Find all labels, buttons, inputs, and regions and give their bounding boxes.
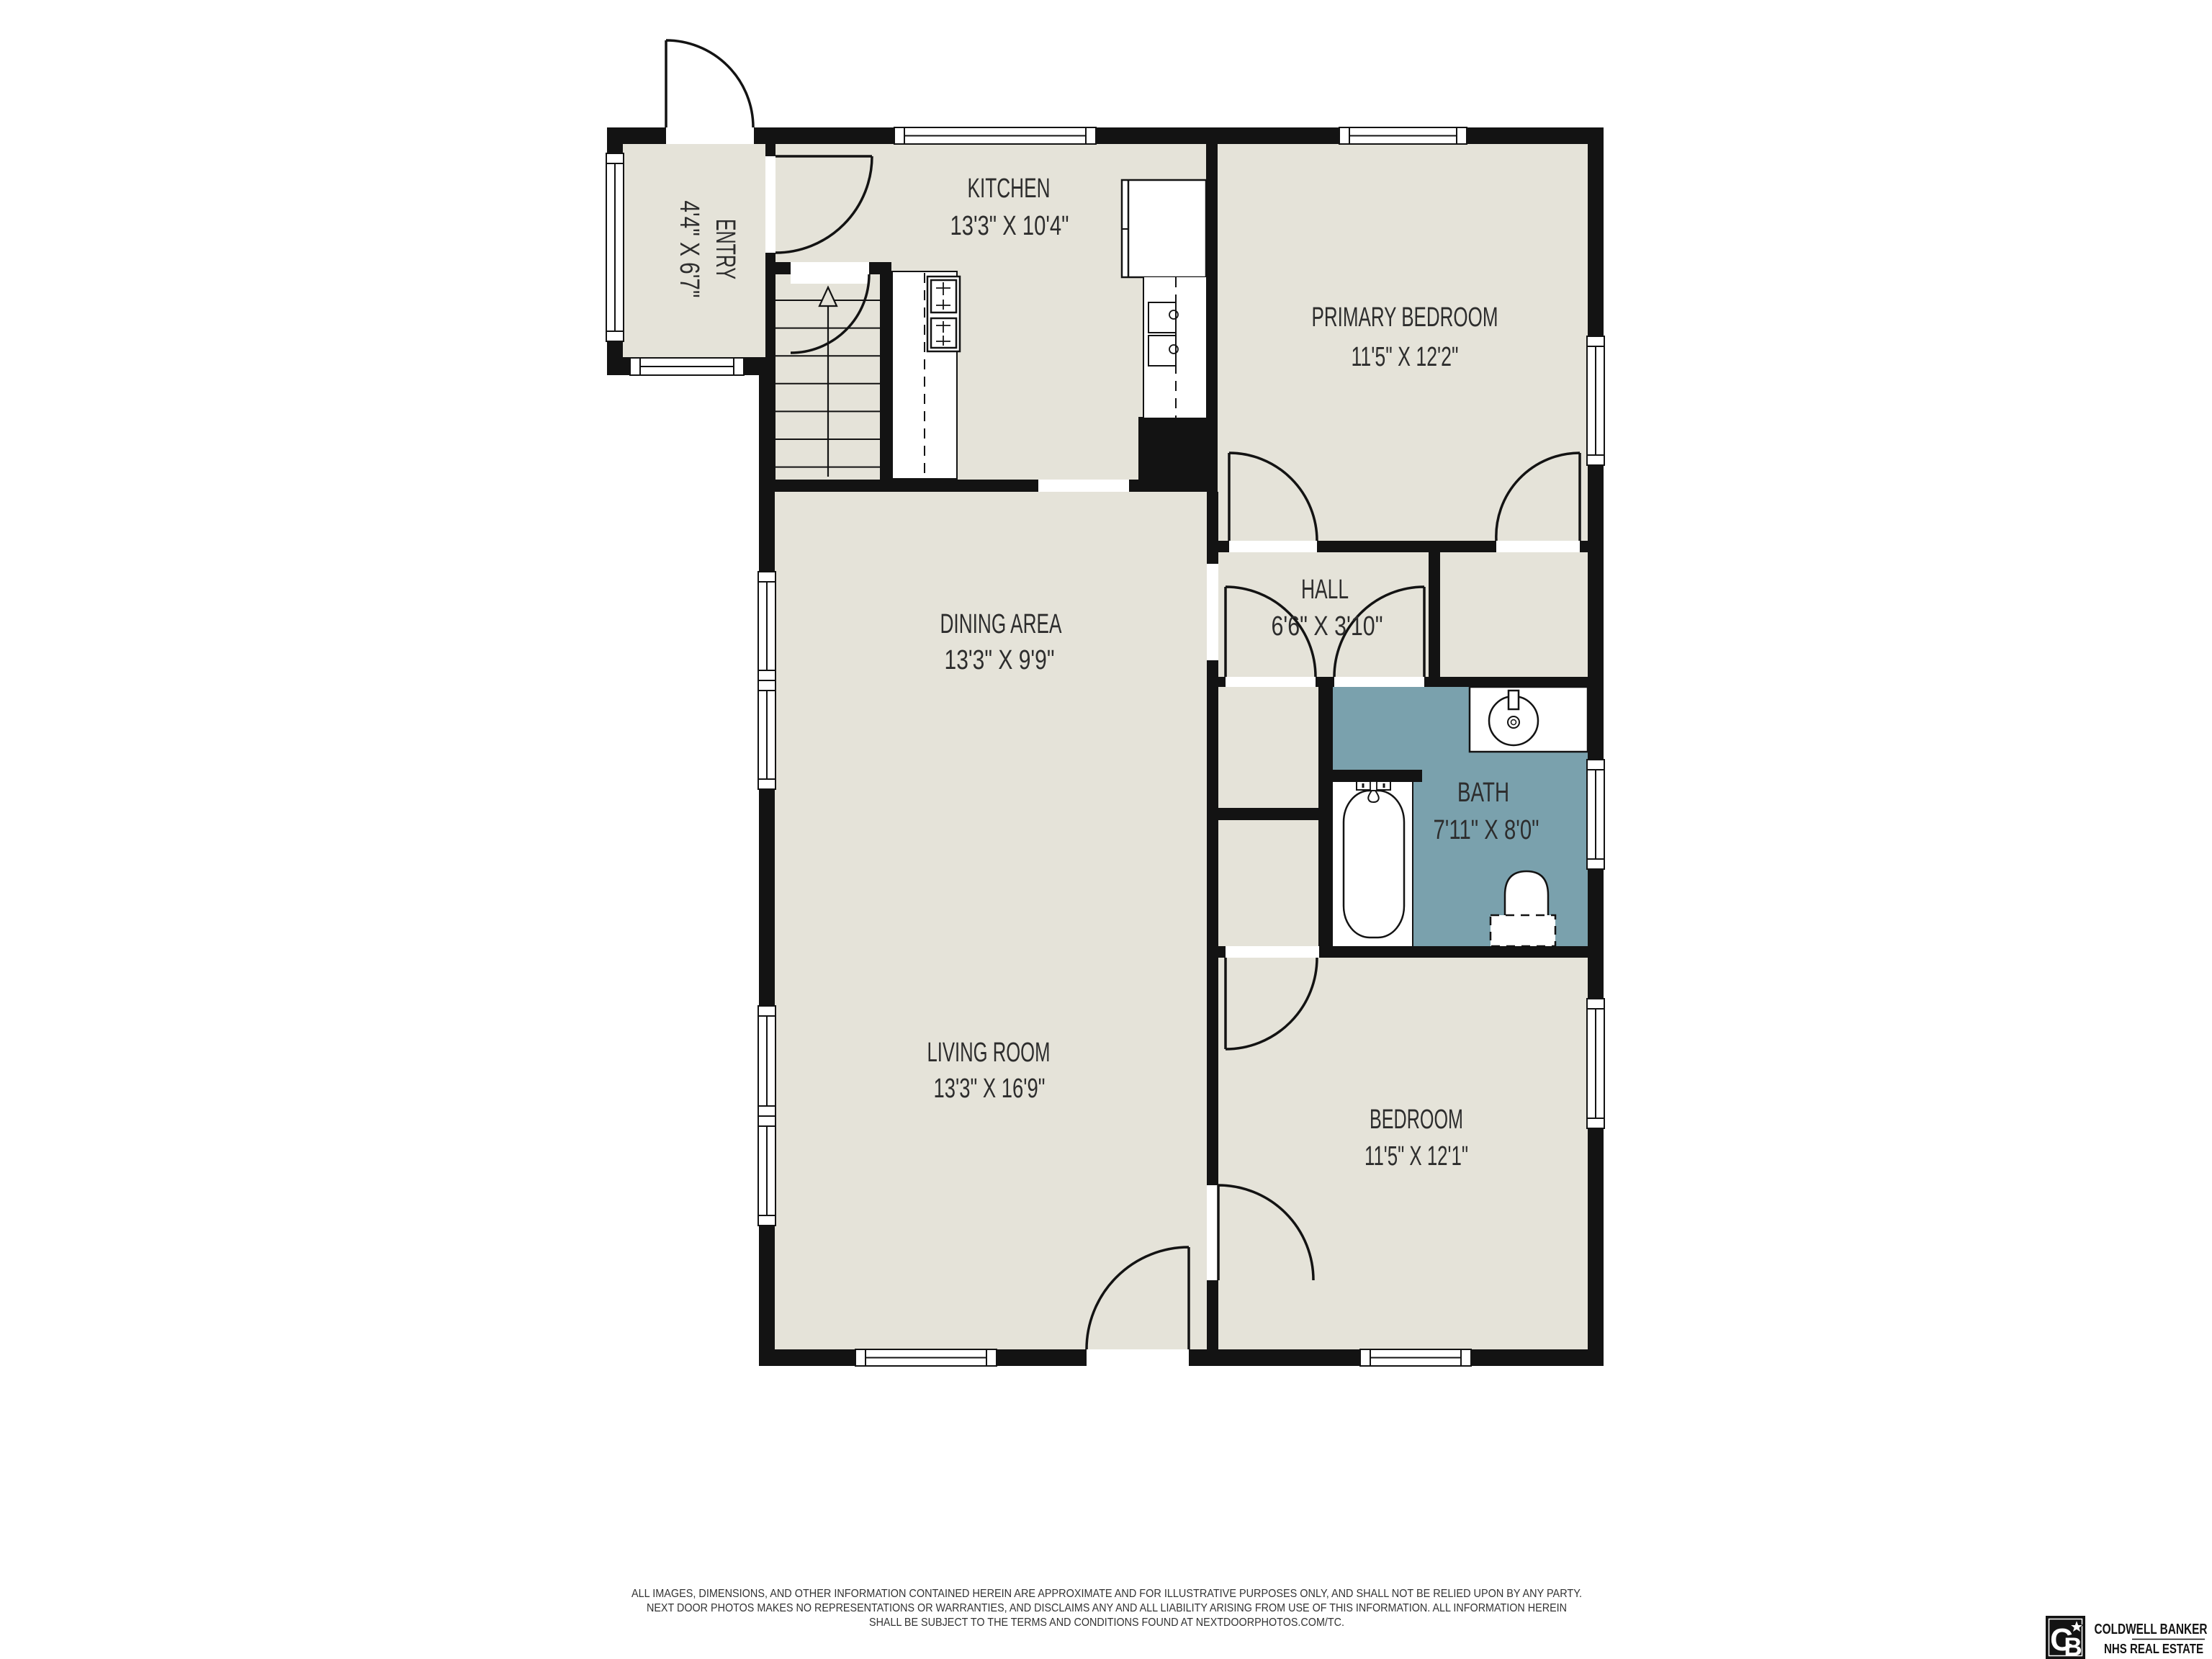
svg-text:NHS REAL ESTATE: NHS REAL ESTATE — [2104, 1642, 2203, 1656]
svg-text:13'3" X 9'9": 13'3" X 9'9" — [945, 645, 1055, 675]
svg-text:13'3" X 10'4": 13'3" X 10'4" — [950, 211, 1069, 241]
svg-text:NEXT DOOR PHOTOS MAKES NO REPR: NEXT DOOR PHOTOS MAKES NO REPRESENTATION… — [647, 1602, 1567, 1614]
svg-text:7'11" X 8'0": 7'11" X 8'0" — [1434, 815, 1539, 845]
svg-text:BEDROOM: BEDROOM — [1370, 1105, 1463, 1135]
svg-text:SHALL BE SUBJECT TO THE TERMS: SHALL BE SUBJECT TO THE TERMS AND CONDIT… — [869, 1617, 1344, 1629]
svg-text:COLDWELL BANKER: COLDWELL BANKER — [2095, 1622, 2208, 1637]
svg-text:11'5" X 12'2": 11'5" X 12'2" — [1352, 342, 1459, 372]
svg-text:HALL: HALL — [1301, 575, 1349, 605]
svg-text:ENTRY: ENTRY — [710, 219, 740, 279]
svg-text:B: B — [2064, 1633, 2082, 1659]
svg-text:11'5" X 12'1": 11'5" X 12'1" — [1364, 1141, 1468, 1172]
svg-text:4'4" X 6'7": 4'4" X 6'7" — [674, 201, 704, 298]
svg-text:DINING AREA: DINING AREA — [940, 609, 1062, 639]
svg-text:PRIMARY BEDROOM: PRIMARY BEDROOM — [1312, 302, 1498, 333]
svg-text:13'3" X 16'9": 13'3" X 16'9" — [934, 1074, 1046, 1104]
svg-text:6'6" X 3'10": 6'6" X 3'10" — [1272, 611, 1383, 642]
svg-text:BATH: BATH — [1457, 778, 1509, 808]
svg-text:ALL IMAGES, DIMENSIONS, AND OT: ALL IMAGES, DIMENSIONS, AND OTHER INFORM… — [631, 1588, 1582, 1600]
svg-text:LIVING ROOM: LIVING ROOM — [927, 1038, 1051, 1068]
svg-text:KITCHEN: KITCHEN — [968, 174, 1051, 204]
